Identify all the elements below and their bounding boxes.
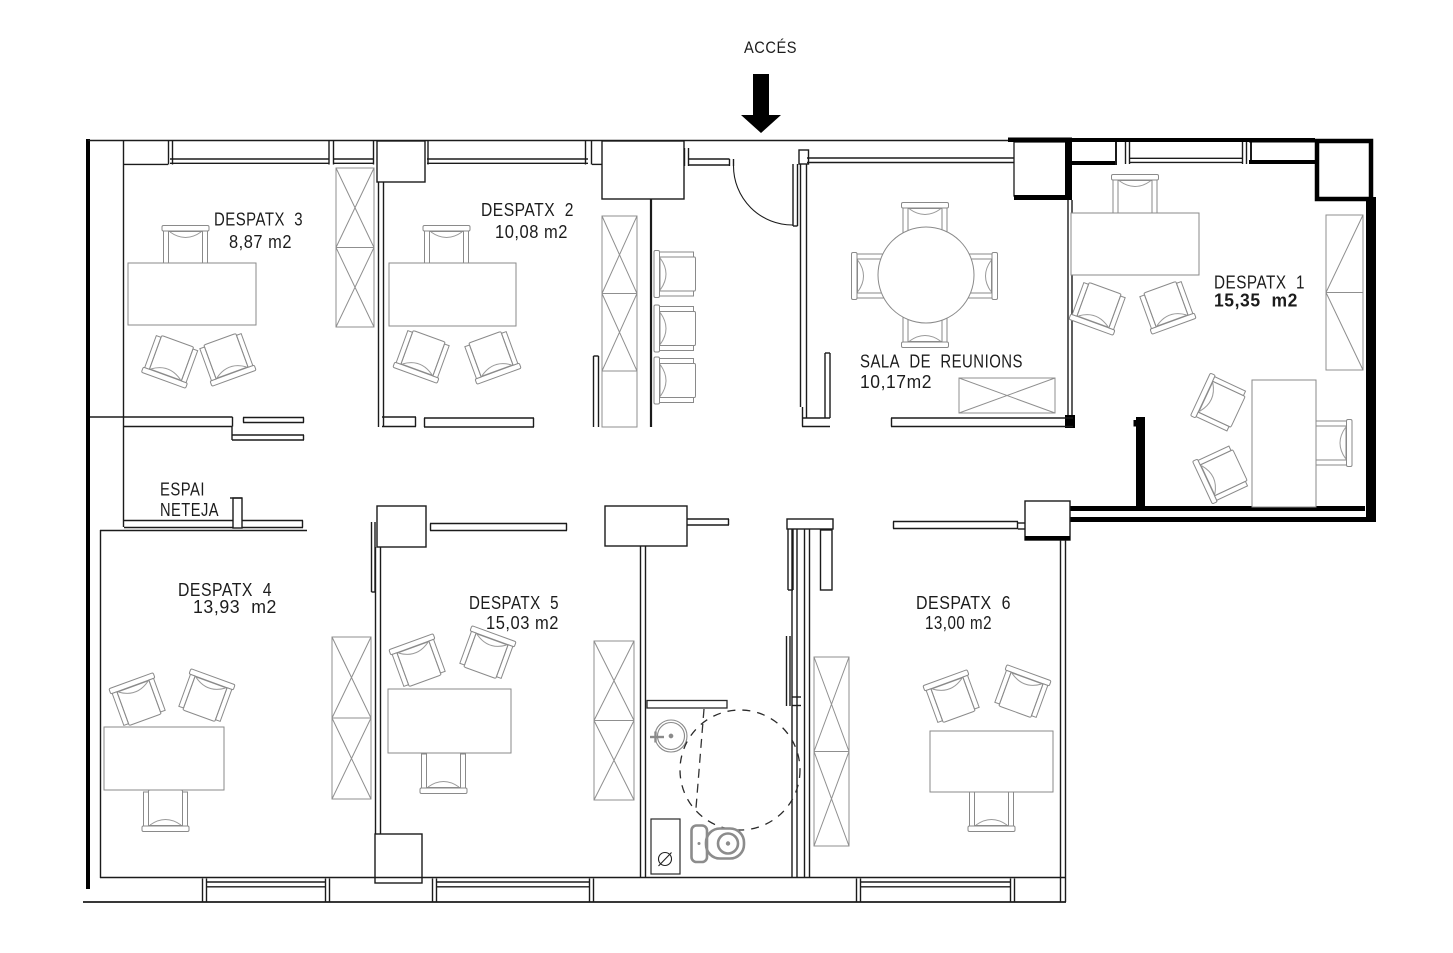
svg-text:8,87 m2: 8,87 m2 [229,231,292,252]
svg-text:NETEJA: NETEJA [160,499,219,520]
svg-text:DESPATX 6: DESPATX 6 [916,592,1011,613]
svg-text:DESPATX 5: DESPATX 5 [469,592,559,613]
svg-text:15,35 m2: 15,35 m2 [1214,290,1298,311]
svg-text:15,03 m2: 15,03 m2 [486,612,559,633]
svg-text:10,08 m2: 10,08 m2 [495,221,568,242]
svg-text:13,00 m2: 13,00 m2 [925,612,992,633]
svg-text:ESPAI: ESPAI [160,479,205,500]
svg-text:DESPATX 3: DESPATX 3 [214,209,303,230]
svg-text:DESPATX 2: DESPATX 2 [481,199,574,220]
svg-text:13,93 m2: 13,93 m2 [193,596,277,617]
svg-text:SALA DE REUNIONS: SALA DE REUNIONS [860,351,1023,372]
svg-text:ACCÉS: ACCÉS [744,38,797,57]
svg-text:10,17m2: 10,17m2 [860,371,932,392]
